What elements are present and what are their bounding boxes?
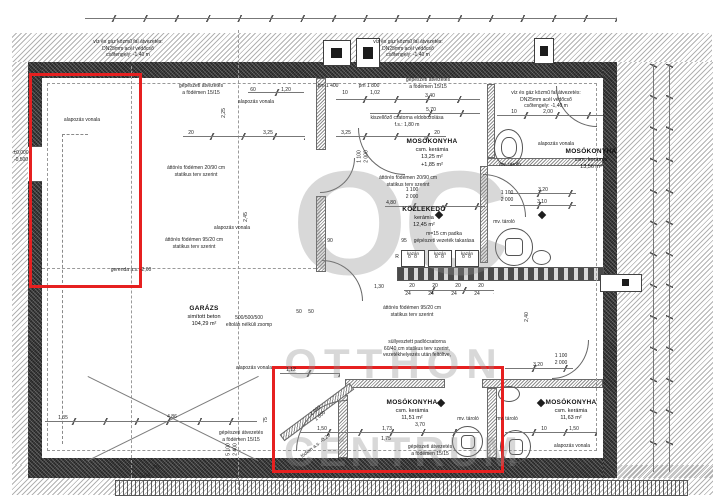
annotation: 1 1002 000 (555, 353, 568, 366)
room-label: MOSÓKONYHAcsm. kerámia13,56 m² (565, 148, 616, 172)
annotation: mv. tároló (493, 219, 515, 226)
dimension-label: 1,20 (281, 87, 291, 93)
dimension-label: 1,50 (317, 426, 327, 432)
annotation: 1 1002 000 (357, 150, 370, 163)
annotation: pm 1 400 (318, 83, 339, 90)
dimension-label: 3,10 (537, 199, 547, 205)
dimension-label: 20 (409, 283, 415, 289)
dimension-label: 20 (432, 283, 438, 289)
dimension-label: 3,70 (415, 422, 425, 428)
room-label: MOSÓKONYHAcsm. kerámia13,25 m²+1,85 m² (406, 138, 457, 169)
dimension-label: 10 (342, 90, 348, 96)
annotation: mv. tároló (496, 416, 518, 423)
annotation: m=15 cm padkagépészeti vezeték takarása (414, 231, 475, 244)
dimension-label: 1,73 (382, 426, 392, 432)
annotation: gépészeti átvezetésa födémen 15/15 (219, 430, 263, 443)
dimension-label: 1,12 (286, 367, 296, 373)
annotation: alapozás vonala (238, 99, 274, 106)
dimension-label: 20 (455, 283, 461, 289)
dimension-label: 24 (428, 291, 434, 297)
annotation: 500/500/500eltolás nélküli zsomp (226, 315, 272, 328)
annotation: gépészeti átvezetésa födémen 15/15 (406, 77, 450, 90)
annotation: alapozás vonala (64, 117, 100, 124)
dimension-label: 3,25 (341, 130, 351, 136)
annotation: ±0,000-0,500 (13, 150, 28, 163)
dimension-label: 75 (263, 417, 269, 423)
dimension-label: 3,04 (140, 473, 150, 479)
dimension-label: 1,30 (374, 284, 384, 290)
annotation: alapozás vonala (554, 443, 590, 450)
annotation: gerenda a.s. -2,60 (111, 267, 152, 274)
room-label: MOSÓKONYHAcsm. kerámia11,63 m² (545, 399, 596, 423)
annotation: alapozás vonala (538, 141, 574, 148)
dimension-label: 3,20 (538, 187, 548, 193)
annotation: 1 1002 000 (406, 187, 419, 200)
dimension-label: 50 (296, 309, 302, 315)
labels-layer: víz és gáz közmű fal átvezetés:DN25mm ac… (0, 0, 720, 500)
dimension-label: 20 (478, 283, 484, 289)
floor-plan-canvas: OC OTTHON CENTRUM kazáno okazáno okazáno… (0, 0, 720, 500)
dimension-label: 50 (308, 309, 314, 315)
dimension-label: 2,25 (221, 108, 227, 118)
annotation: víz és gáz közmű fal átvezetés:DN25mm ac… (373, 39, 442, 59)
dimension-label: 10 (541, 426, 547, 432)
dimension-label: 24 (474, 291, 480, 297)
annotation: gépészeti átvezetésa födémen 15/15 (408, 444, 452, 457)
room-label: GARÁZSsimított beton104,29 m² (187, 305, 220, 329)
dimension-label: 1,75 (381, 436, 391, 442)
dimension-label: 1,02 (370, 90, 380, 96)
dimension-label: 20 (188, 130, 194, 136)
annotation: mv. tároló (499, 162, 521, 169)
dimension-label: 2,00 (543, 109, 553, 115)
annotation: 2% (152, 465, 159, 472)
annotation: süllyesztett padlócsatorna60/40 cm stati… (383, 339, 451, 359)
dimension-label: 3,40 (425, 93, 435, 99)
dimension-label: 3,20 (533, 362, 543, 368)
annotation: födém a.s. -0,20 (300, 433, 332, 460)
annotation: 5 1002 400 (226, 443, 239, 456)
annotation: alapozás vonala (214, 225, 250, 232)
dimension-label: 95 (401, 238, 407, 244)
dimension-label: 24 (405, 291, 411, 297)
dimension-label: 2,40 (524, 312, 530, 322)
dimension-label: 90 (327, 238, 333, 244)
annotation: víz és gáz közmű fal átvezetés:DN25mm ac… (511, 90, 580, 110)
dimension-label: 4,80 (386, 200, 396, 206)
dimension-label: 3,25 (263, 130, 273, 136)
annotation: alapozás vonala (236, 365, 272, 372)
annotation: mv. tároló (457, 416, 479, 423)
annotation: áttörés födémen 20/90 cmstatikus terv sz… (167, 165, 225, 178)
annotation: gépészeti átvezetésa födémen 15/15 (179, 83, 223, 96)
dimension-label: 1,35 (58, 415, 68, 421)
dimension-label: 5,70 (426, 107, 436, 113)
dimension-label: 1,50 (569, 426, 579, 432)
annotation: 1 1002 000 (501, 190, 514, 203)
dimension-label: 20 (434, 130, 440, 136)
annotation: R (395, 254, 399, 261)
dimension-label: 24 (451, 291, 457, 297)
annotation: kiszellőző csatorna eldobozolásaf.s.: 1,… (370, 115, 443, 128)
annotation: pm 1 800 (359, 83, 380, 90)
annotation: víz és gáz közmű fal átvezetés:DN25mm ac… (93, 39, 162, 59)
annotation: áttörés födémen 95/20 cmstatikus terv sz… (165, 237, 223, 250)
dimension-label: 4,86 (167, 414, 177, 420)
room-label: MOSÓKONYHAcsm. kerámia11,51 m² (386, 399, 437, 423)
annotation: áttörés födémen 95/20 cmstatikus terv sz… (383, 305, 441, 318)
annotation: 2 0001 800 (309, 404, 327, 422)
dimension-label: 60 (250, 87, 256, 93)
room-label: KÖZLEKEDŐkerámia12,45 m² (402, 206, 446, 230)
dimension-label: 10 (511, 109, 517, 115)
dimension-label: 2,45 (243, 212, 249, 222)
